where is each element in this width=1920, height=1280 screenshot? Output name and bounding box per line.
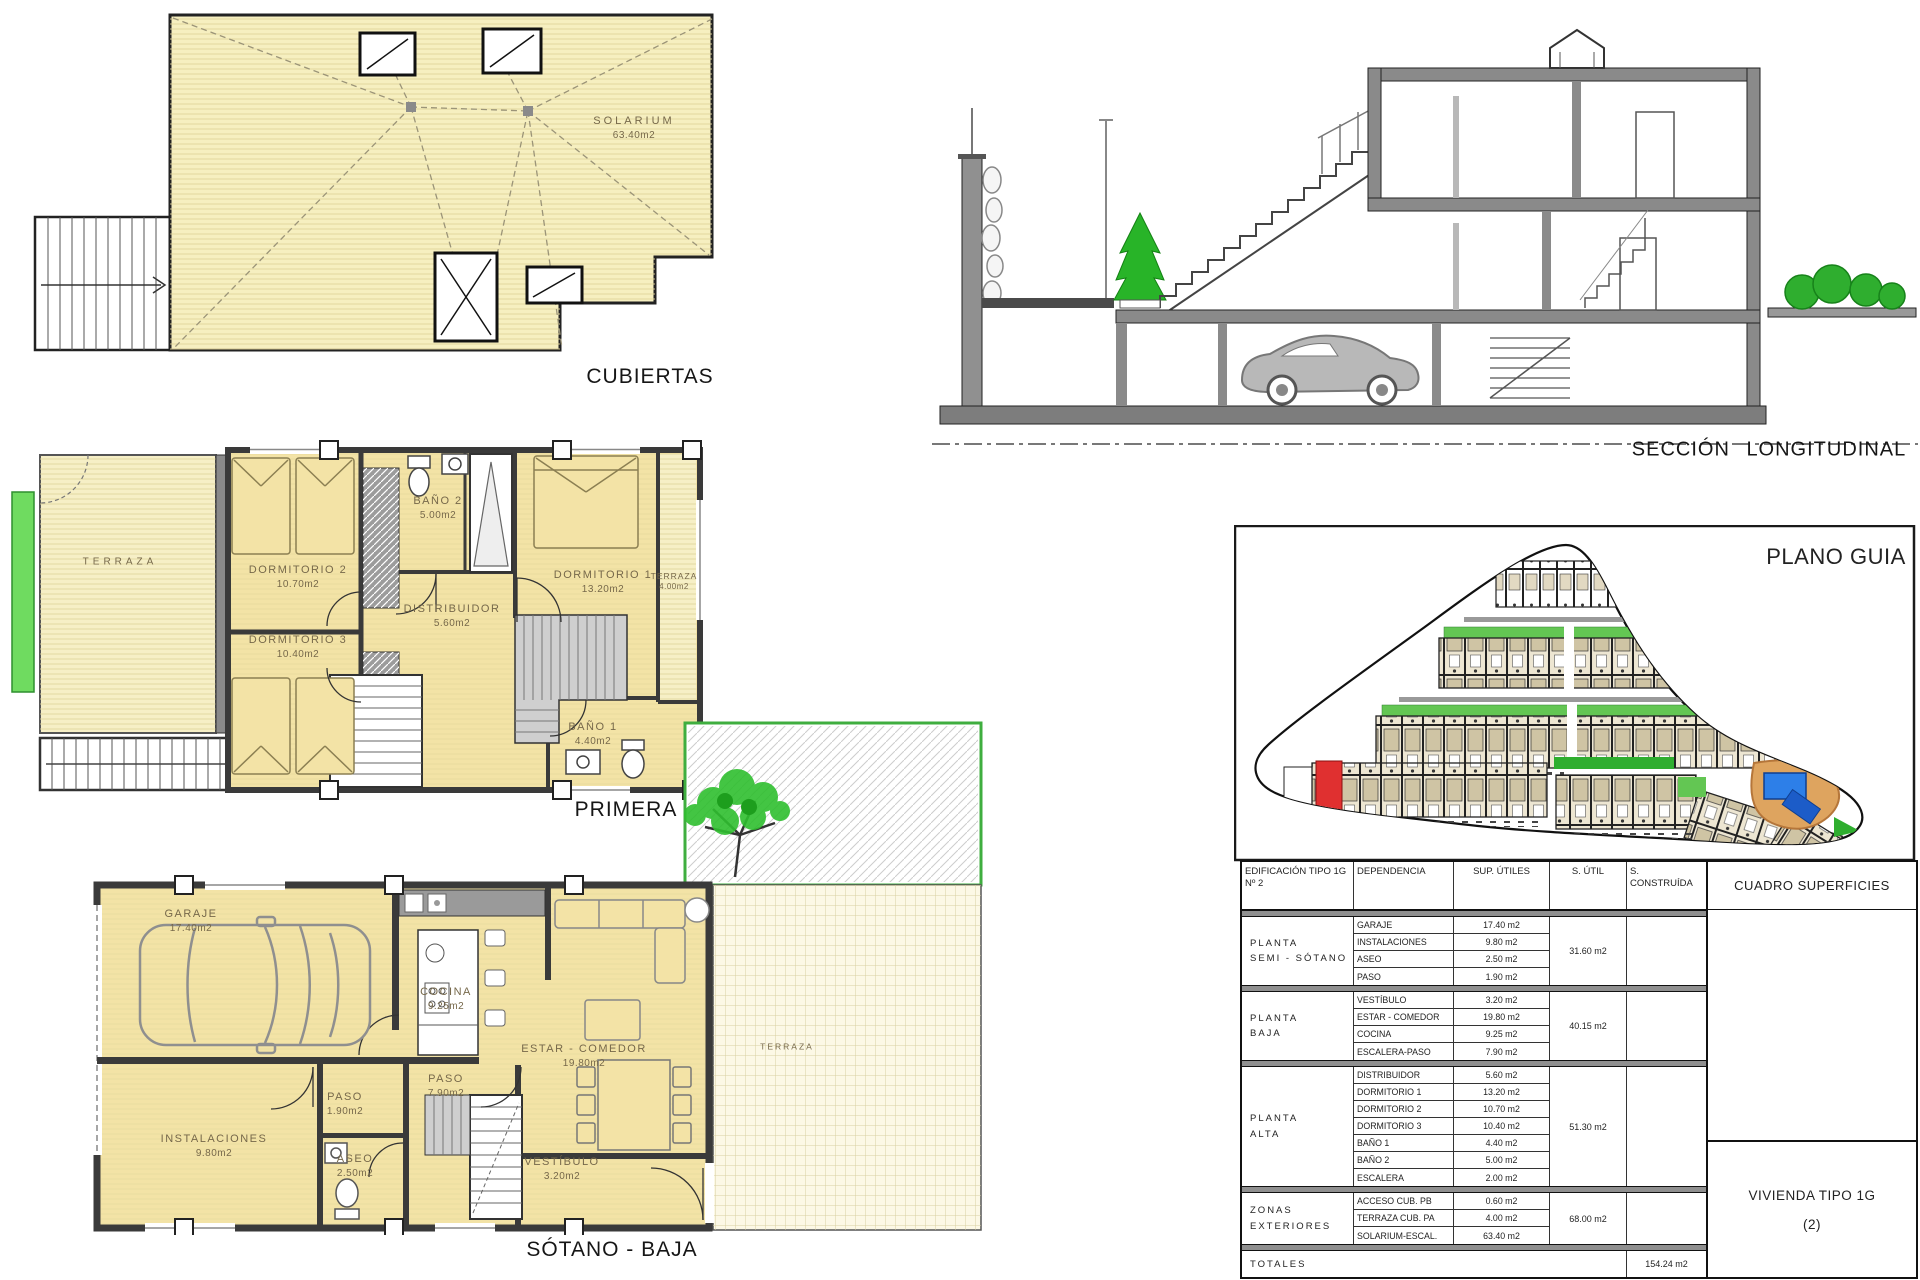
- room-label-dormitorio2: DORMITORIO 210.70m2: [249, 563, 347, 591]
- exterior-stair: [1160, 152, 1372, 314]
- dependencia-cell: ASEO: [1354, 951, 1454, 968]
- room-label-paso-pb: PASO7.90m2: [428, 1072, 464, 1100]
- table-title: CUADRO SUPERFICIES: [1708, 862, 1916, 910]
- architectural-plan-sheet: SOLARIUM63.40m2 CUBIERTAS TERRAZA DORMIT…: [0, 0, 1920, 1280]
- plan-title-plano-guia: PLANO GUIA: [1766, 544, 1905, 570]
- group-label: PLANTA BAJA: [1242, 992, 1354, 1060]
- table-group: ZONAS EXTERIORESACCESO CUB. PB0.60 m2TER…: [1242, 1193, 1706, 1244]
- table-group: PLANTA BAJAVESTÍBULO3.20 m2ESTAR - COMED…: [1242, 992, 1706, 1060]
- group-separator: [1242, 1244, 1706, 1251]
- table-row: BAÑO 25.00 m2: [1354, 1152, 1550, 1169]
- dwelling-type-line1: VIVIENDA TIPO 1G: [1748, 1188, 1875, 1203]
- dependencia-cell: ESTAR - COMEDOR: [1354, 1009, 1454, 1026]
- s-util-cell: 51.30 m2: [1550, 1067, 1627, 1186]
- roof-stair-wing: [35, 217, 170, 350]
- totales-row: TOTALES154.24 m2: [1242, 1251, 1706, 1277]
- table-right-pane: CUADRO SUPERFICIESVIVIENDA TIPO 1G(2): [1706, 862, 1916, 1277]
- room-label-estar-comedor: ESTAR - COMEDOR19.80m2: [521, 1042, 647, 1070]
- sup-utiles-cell: 63.40 m2: [1454, 1227, 1550, 1244]
- table-row: SOLARIUM-ESCAL.63.40 m2: [1354, 1227, 1550, 1244]
- plan-title-seccion: SECCIÓN LONGITUDINAL: [1632, 439, 1906, 462]
- sup-utiles-cell: 10.40 m2: [1454, 1118, 1550, 1135]
- s-util-cell: 40.15 m2: [1550, 992, 1627, 1060]
- group-rows: DISTRIBUIDOR5.60 m2DORMITORIO 113.20 m2D…: [1354, 1067, 1550, 1186]
- sup-utiles-cell: 4.40 m2: [1454, 1135, 1550, 1152]
- group-separator: [1242, 910, 1706, 917]
- room-label-cocina: COCINA9.25m2: [420, 985, 472, 1013]
- group-separator: [1242, 1060, 1706, 1067]
- dining-table-icon: [577, 1060, 691, 1150]
- table-row: TERRAZA CUB. PA4.00 m2: [1354, 1210, 1550, 1227]
- roof-plan-drawing: [15, 5, 715, 390]
- dependencia-cell: DORMITORIO 1: [1354, 1084, 1454, 1101]
- table-row: DORMITORIO 210.70 m2: [1354, 1101, 1550, 1118]
- toilet-icon: [408, 456, 430, 496]
- s-construida-cell: [1627, 992, 1706, 1060]
- room-label-terraza-grid: TERRAZA: [760, 1041, 814, 1052]
- table-row: DORMITORIO 113.20 m2: [1354, 1084, 1550, 1101]
- table-row: DORMITORIO 310.40 m2: [1354, 1118, 1550, 1135]
- group-rows: VESTÍBULO3.20 m2ESTAR - COMEDOR19.80 m2C…: [1354, 992, 1550, 1060]
- table-row: COCINA9.25 m2: [1354, 1026, 1550, 1043]
- sup-utiles-cell: 9.80 m2: [1454, 934, 1550, 951]
- dependencia-cell: INSTALACIONES: [1354, 934, 1454, 951]
- group-label: PLANTA SEMI - SÓTANO: [1242, 917, 1354, 985]
- table-group: PLANTA SEMI - SÓTANOGARAJE17.40 m2INSTAL…: [1242, 917, 1706, 985]
- sink-icon: [442, 454, 468, 474]
- table-row: ESTAR - COMEDOR19.80 m2: [1354, 1009, 1550, 1026]
- table-row: GARAJE17.40 m2: [1354, 917, 1550, 934]
- room-label-solarium: SOLARIUM63.40m2: [593, 114, 674, 142]
- rubble-hatch: [982, 167, 1003, 305]
- roof-lantern: [1550, 30, 1604, 68]
- group-label: ZONAS EXTERIORES: [1242, 1193, 1354, 1244]
- table-group: PLANTA ALTADISTRIBUIDOR5.60 m2DORMITORIO…: [1242, 1067, 1706, 1186]
- col-header-sup-utiles: SUP. ÚTILES: [1454, 862, 1550, 909]
- basement-stair: [1490, 338, 1570, 398]
- s-util-cell: 31.60 m2: [1550, 917, 1627, 985]
- room-label-dormitorio1: DORMITORIO 113.20m2: [554, 568, 652, 596]
- dependencia-cell: GARAJE: [1354, 917, 1454, 934]
- room-label-vestibulo: VESTÍBULO3.20m2: [524, 1155, 599, 1183]
- dependencia-cell: COCINA: [1354, 1026, 1454, 1043]
- sup-utiles-cell: 4.00 m2: [1454, 1210, 1550, 1227]
- dependencia-cell: BAÑO 2: [1354, 1152, 1454, 1169]
- col-header-s-construida: S. CONSTRUÍDA: [1627, 862, 1706, 909]
- dependencia-cell: ESCALERA-PASO: [1354, 1043, 1454, 1060]
- table-row: PASO1.90 m2: [1354, 968, 1550, 985]
- s-util-cell: 68.00 m2: [1550, 1193, 1627, 1244]
- sup-utiles-cell: 13.20 m2: [1454, 1084, 1550, 1101]
- dependencia-cell: TERRAZA CUB. PA: [1354, 1210, 1454, 1227]
- dependencia-cell: DISTRIBUIDOR: [1354, 1067, 1454, 1084]
- surfaces-table: EDIFICACIÓN TIPO 1G Nº 2DEPENDENCIASUP. …: [1240, 860, 1918, 1279]
- empty-cell: [1708, 910, 1916, 1140]
- dependencia-cell: PASO: [1354, 968, 1454, 985]
- bush-icon: [1785, 265, 1905, 309]
- table-row: ESCALERA2.00 m2: [1354, 1169, 1550, 1186]
- table-row: DISTRIBUIDOR5.60 m2: [1354, 1067, 1550, 1084]
- table-row: VESTÍBULO3.20 m2: [1354, 992, 1550, 1009]
- s-construida-cell: [1627, 917, 1706, 985]
- group-rows: ACCESO CUB. PB0.60 m2TERRAZA CUB. PA4.00…: [1354, 1193, 1550, 1244]
- room-label-paso-ss: PASO1.90m2: [327, 1090, 363, 1118]
- col-header-s-util: S. ÚTIL: [1550, 862, 1627, 909]
- group-separator: [1242, 1186, 1706, 1193]
- sup-utiles-cell: 9.25 m2: [1454, 1026, 1550, 1043]
- group-label: PLANTA ALTA: [1242, 1067, 1354, 1186]
- dependencia-cell: ACCESO CUB. PB: [1354, 1193, 1454, 1210]
- room-label-terraza-izq: TERRAZA: [83, 555, 158, 569]
- dwelling-type-cell: VIVIENDA TIPO 1G(2): [1708, 1140, 1916, 1277]
- totales-label: TOTALES: [1242, 1251, 1627, 1277]
- col-header-edificacion: EDIFICACIÓN TIPO 1G Nº 2: [1242, 862, 1354, 909]
- s-construida-cell: [1627, 1067, 1706, 1186]
- table-row: ACCESO CUB. PB0.60 m2: [1354, 1193, 1550, 1210]
- interior-stair: [1580, 210, 1648, 308]
- sup-utiles-cell: 1.90 m2: [1454, 968, 1550, 985]
- sup-utiles-cell: 19.80 m2: [1454, 1009, 1550, 1026]
- plan-title-cubiertas: CUBIERTAS: [586, 365, 713, 389]
- s-construida-cell: [1627, 1193, 1706, 1244]
- site-plan-drawing: [1234, 525, 1916, 862]
- toilet-icon: [335, 1179, 359, 1219]
- plan-title-primera: PRIMERA: [575, 798, 678, 822]
- room-label-terraza-der: TERRAZA4.00m2: [651, 571, 698, 593]
- dependencia-cell: VESTÍBULO: [1354, 992, 1454, 1009]
- col-header-dependencia: DEPENDENCIA: [1354, 862, 1454, 909]
- dwelling-type-line2: (2): [1803, 1217, 1821, 1232]
- car-side-icon: [1242, 336, 1419, 404]
- room-label-bano1: BAÑO 14.40m2: [568, 720, 617, 748]
- dependencia-cell: DORMITORIO 3: [1354, 1118, 1454, 1135]
- totales-value: 154.24 m2: [1627, 1251, 1706, 1277]
- sup-utiles-cell: 2.50 m2: [1454, 951, 1550, 968]
- room-label-aseo: ASEO2.50m2: [337, 1152, 374, 1180]
- room-label-instalaciones: INSTALACIONES9.80m2: [161, 1132, 268, 1160]
- table-header-row: EDIFICACIÓN TIPO 1G Nº 2DEPENDENCIASUP. …: [1242, 862, 1706, 910]
- tree-icon: [1114, 213, 1166, 307]
- dependencia-cell: SOLARIUM-ESCAL.: [1354, 1227, 1454, 1244]
- green-strip: [12, 492, 34, 692]
- plan-title-sotano-baja: SÓTANO - BAJA: [526, 1238, 697, 1262]
- table-left-pane: EDIFICACIÓN TIPO 1G Nº 2DEPENDENCIASUP. …: [1242, 862, 1706, 1277]
- group-separator: [1242, 985, 1706, 992]
- dependencia-cell: BAÑO 1: [1354, 1135, 1454, 1152]
- section-drawing: [930, 8, 1920, 458]
- sup-utiles-cell: 3.20 m2: [1454, 992, 1550, 1009]
- group-rows: GARAJE17.40 m2INSTALACIONES9.80 m2ASEO2.…: [1354, 917, 1550, 985]
- table-row: ASEO2.50 m2: [1354, 951, 1550, 968]
- table-row: BAÑO 14.40 m2: [1354, 1135, 1550, 1152]
- sup-utiles-cell: 10.70 m2: [1454, 1101, 1550, 1118]
- dependencia-cell: ESCALERA: [1354, 1169, 1454, 1186]
- sup-utiles-cell: 5.60 m2: [1454, 1067, 1550, 1084]
- dependencia-cell: DORMITORIO 2: [1354, 1101, 1454, 1118]
- room-label-dormitorio3: DORMITORIO 310.40m2: [249, 633, 347, 661]
- sup-utiles-cell: 2.00 m2: [1454, 1169, 1550, 1186]
- table-row: ESCALERA-PASO7.90 m2: [1354, 1043, 1550, 1060]
- table-row: INSTALACIONES9.80 m2: [1354, 934, 1550, 951]
- room-label-bano2: BAÑO 25.00m2: [413, 494, 462, 522]
- sup-utiles-cell: 0.60 m2: [1454, 1193, 1550, 1210]
- sup-utiles-cell: 5.00 m2: [1454, 1152, 1550, 1169]
- sup-utiles-cell: 17.40 m2: [1454, 917, 1550, 934]
- room-label-distribuidor: DISTRIBUIDOR5.60m2: [404, 602, 501, 630]
- sup-utiles-cell: 7.90 m2: [1454, 1043, 1550, 1060]
- room-label-garaje: GARAJE17.40m2: [164, 907, 217, 935]
